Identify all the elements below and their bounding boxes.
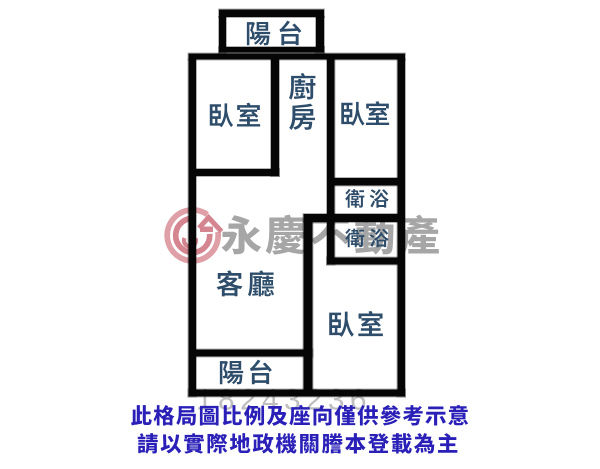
svg-text:18243236: 18243236 — [196, 384, 372, 417]
